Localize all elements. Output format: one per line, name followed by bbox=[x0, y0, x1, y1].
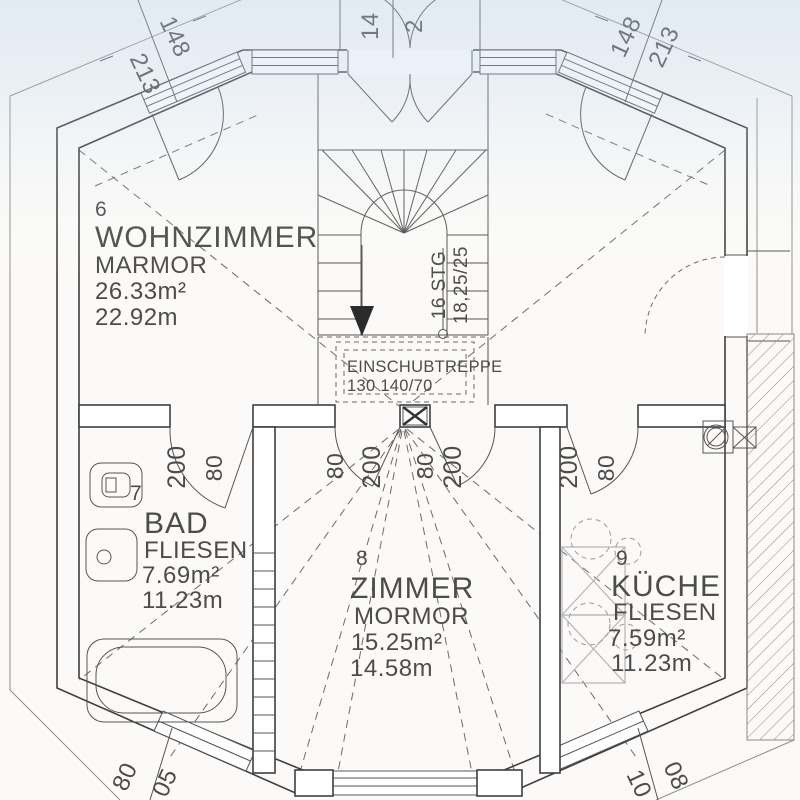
floor-plan-canvas: 16 STG 18,25/25 EINSCHUBTREPPE 130 140/7… bbox=[0, 0, 800, 800]
room-name: BAD bbox=[144, 507, 209, 540]
dim-bottom-right-1: 10 bbox=[621, 766, 657, 800]
dim-top-left-1: 148 bbox=[154, 12, 196, 61]
room-labels: 6 WOHNZIMMER MARMOR 26.33m² 22.92m 7 BAD… bbox=[95, 198, 721, 682]
room-floor: FLIESEN bbox=[613, 599, 717, 626]
dim-room-right-80: 80 bbox=[412, 453, 438, 480]
room-area: 7.59m² bbox=[608, 625, 686, 652]
dim-room-left-200: 200 bbox=[358, 445, 386, 488]
dim-bad-door-200: 200 bbox=[163, 445, 191, 488]
room-number: 6 bbox=[95, 198, 107, 221]
sink bbox=[86, 529, 137, 581]
room-number: 8 bbox=[356, 547, 368, 570]
attic-ladder-label: EINSCHUBTREPPE bbox=[347, 358, 502, 376]
room-circumference: 11.23m bbox=[611, 650, 692, 677]
room-number: 7 bbox=[130, 482, 142, 505]
dim-bottom-left-1: 80 bbox=[107, 759, 143, 796]
room-name: WOHNZIMMER bbox=[95, 221, 318, 254]
stair-dimensions-label: 18,25/25 bbox=[451, 246, 472, 324]
cant-window-leaves bbox=[152, 87, 652, 180]
room-name: ZIMMER bbox=[350, 572, 474, 605]
window-bottom bbox=[295, 770, 522, 796]
room-wohnzimmer-label: 6 WOHNZIMMER MARMOR 26.33m² 22.92m bbox=[95, 198, 318, 331]
dim-top-right-1: 148 bbox=[605, 12, 647, 61]
room-zimmer-label: 8 ZIMMER MORMOR 15.25m² 14.58m bbox=[350, 547, 474, 682]
attic-ladder-dimensions: 130 140/70 bbox=[347, 377, 433, 395]
dim-top-right-2: 213 bbox=[643, 22, 685, 71]
neighbour-wall-hatch bbox=[747, 334, 794, 740]
window-top-right bbox=[480, 50, 556, 74]
dim-bottom-left-2: 05 bbox=[147, 765, 183, 800]
room-number: 9 bbox=[616, 547, 628, 570]
dim-kitchen-200: 200 bbox=[555, 445, 583, 488]
stair-steps-label: 16 STG bbox=[429, 251, 450, 319]
room-kueche-label: 9 KÜCHE FLIESEN 7.59m² 11.23m bbox=[608, 547, 721, 677]
room-floor: FLIESEN bbox=[144, 537, 248, 564]
room-floor: MORMOR bbox=[354, 603, 469, 630]
attic-ladder: EINSCHUBTREPPE 130 140/70 bbox=[336, 342, 502, 402]
winder-treads bbox=[318, 150, 488, 233]
dim-bad-door-80: 80 bbox=[201, 455, 227, 482]
dim-kitchen-80: 80 bbox=[593, 455, 619, 482]
dim-room-right-200: 200 bbox=[439, 445, 467, 488]
room-circumference: 11.23m bbox=[142, 587, 223, 614]
floor-plan-page: 16 STG 18,25/25 EINSCHUBTREPPE 130 140/7… bbox=[0, 0, 800, 800]
room-circumference: 22.92m bbox=[95, 304, 178, 331]
staircase: 16 STG 18,25/25 bbox=[318, 150, 488, 339]
room-area: 26.33m² bbox=[95, 278, 187, 305]
dim-top-center-1: 14 bbox=[357, 12, 384, 40]
room-bad-label: 7 BAD FLIESEN 7.69m² 11.23m bbox=[130, 482, 248, 614]
room-area: 15.25m² bbox=[351, 629, 443, 656]
bathtub bbox=[87, 639, 237, 722]
door-right-wall bbox=[645, 251, 790, 341]
room-floor: MARMOR bbox=[95, 252, 207, 279]
dim-top-center-2: 2 bbox=[401, 19, 428, 33]
room-area: 7.69m² bbox=[142, 562, 220, 589]
window-top-left bbox=[252, 50, 338, 74]
dim-room-left-80: 80 bbox=[322, 453, 348, 480]
window-bottom-left-cant bbox=[154, 711, 255, 771]
room-circumference: 14.58m bbox=[350, 655, 433, 682]
exterior-openings bbox=[141, 0, 790, 796]
window-bottom-right-cant bbox=[547, 711, 648, 771]
dim-bottom-right-2: 08 bbox=[658, 758, 694, 795]
